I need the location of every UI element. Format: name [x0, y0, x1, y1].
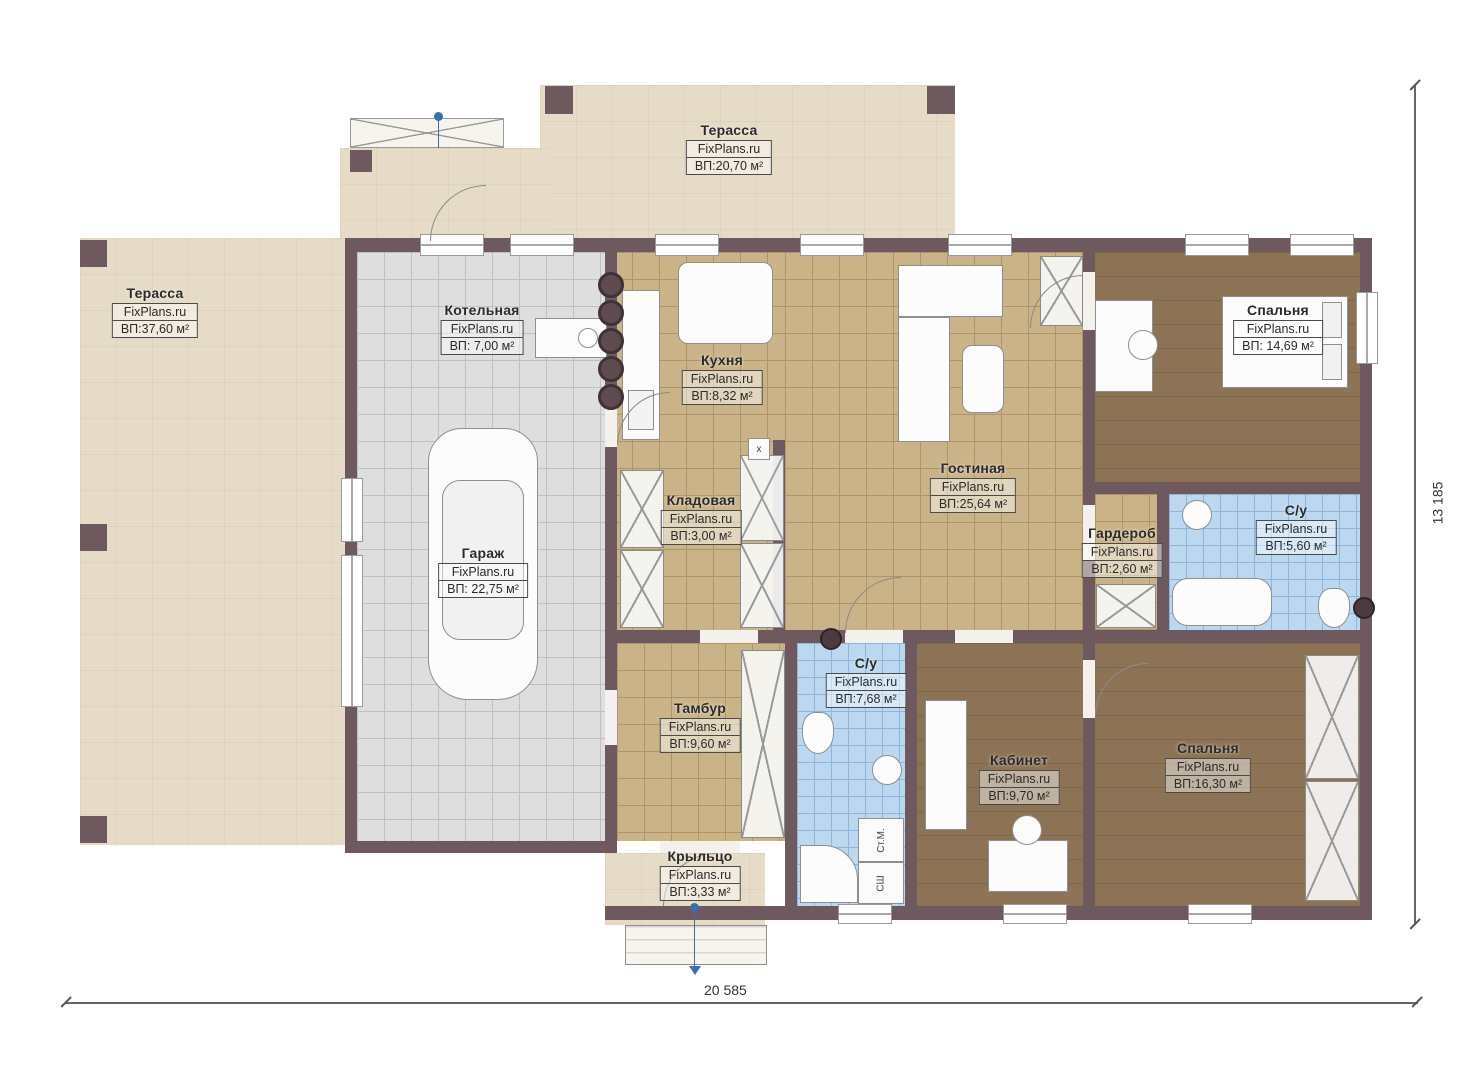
room-area: ВП: 14,69 м²	[1234, 338, 1322, 354]
label-office: Кабинет FixPlans.ru ВП:9,70 м²	[979, 752, 1060, 805]
label-wardrobe: Гардероб FixPlans.ru ВП:2,60 м²	[1082, 525, 1163, 578]
label-terrace-left: Терасса FixPlans.ru ВП:37,60 м²	[112, 285, 198, 338]
room-name: Гардероб	[1082, 525, 1163, 541]
room-area: ВП:37,60 м²	[113, 321, 197, 337]
bedroom1-pillow-1	[1322, 302, 1342, 338]
watermark: FixPlans.ru	[1083, 544, 1162, 561]
floor-plan: Ст.М. СШ x Терасса FixPlans.ru ВП:20,70 …	[0, 0, 1474, 1080]
label-bedroom2: Спальня FixPlans.ru ВП:16,30 м²	[1165, 740, 1251, 793]
label-garage: Гараж FixPlans.ru ВП: 22,75 м²	[438, 545, 528, 598]
living-sofa-side	[898, 317, 950, 442]
wall-bath2-office	[905, 643, 917, 908]
vent-marker-label: x	[757, 444, 762, 455]
watermark: FixPlans.ru	[980, 771, 1059, 788]
window-top-5	[948, 234, 1012, 256]
room-name: Котельная	[441, 302, 524, 318]
room-name: Кухня	[682, 352, 763, 368]
watermark: FixPlans.ru	[661, 867, 740, 884]
living-coffee-table	[962, 345, 1004, 413]
wall-bedroom1-south	[1095, 482, 1360, 494]
label-boiler: Котельная FixPlans.ru ВП: 7,00 м²	[441, 302, 524, 355]
watermark: FixPlans.ru	[687, 141, 771, 158]
porch-steps	[625, 925, 767, 965]
watermark: FixPlans.ru	[1257, 521, 1336, 538]
room-name: Терасса	[686, 122, 772, 138]
room-area: ВП: 22,75 м²	[439, 581, 527, 597]
bathroom1-sink	[1182, 500, 1212, 530]
wall-garage-bottom	[345, 841, 617, 853]
watermark: FixPlans.ru	[827, 674, 906, 691]
washing-machine: Ст.М.	[858, 818, 904, 862]
window-bedroom1	[1356, 292, 1378, 364]
bedroom2-closet-2	[1305, 781, 1359, 901]
bathroom2-sink	[872, 755, 902, 785]
watermark: FixPlans.ru	[1234, 321, 1322, 338]
porch-axis-dot	[690, 903, 699, 912]
pillar-terrace-left-bottom	[80, 816, 107, 843]
office-sofa	[925, 700, 967, 830]
vent-marker: x	[748, 438, 770, 460]
wall-left	[345, 238, 357, 853]
room-name: Спальня	[1233, 302, 1323, 318]
storage-closet-2	[620, 550, 664, 628]
window-bottom-1	[838, 904, 892, 924]
wall-tambour-east	[785, 643, 797, 920]
watermark: FixPlans.ru	[662, 511, 741, 528]
room-name: Спальня	[1165, 740, 1251, 756]
dim-height-label: 13 185	[1429, 478, 1445, 529]
label-bathroom1: С/у FixPlans.ru ВП:5,60 м²	[1256, 502, 1337, 555]
boiler-sink	[578, 328, 598, 348]
watermark: FixPlans.ru	[1166, 759, 1250, 776]
porch-axis-arrow	[689, 966, 701, 975]
window-top-4	[800, 234, 864, 256]
room-area: ВП:2,60 м²	[1083, 561, 1162, 577]
burner-2	[598, 300, 624, 326]
storage-closet-4	[740, 543, 784, 628]
dining-table	[678, 262, 773, 344]
window-bottom-2	[1003, 904, 1067, 924]
dryer-label: СШ	[875, 875, 886, 891]
label-tambour: Тамбур FixPlans.ru ВП:9,60 м²	[660, 700, 741, 753]
room-name: Гостиная	[930, 460, 1016, 476]
label-bedroom1: Спальня FixPlans.ru ВП: 14,69 м²	[1233, 302, 1323, 355]
room-area: ВП: 7,00 м²	[442, 338, 523, 354]
office-chair	[1012, 815, 1042, 845]
room-name: Гараж	[438, 545, 528, 561]
porch-axis-line	[694, 905, 695, 973]
watermark: FixPlans.ru	[931, 479, 1015, 496]
dim-line-bottom	[65, 1002, 1418, 1004]
garage-gate	[341, 555, 363, 707]
door-tambour-hall	[700, 630, 758, 643]
pillar-terrace-left-top	[80, 240, 107, 267]
riser-dot-1	[820, 628, 842, 650]
window-garage	[341, 478, 363, 542]
watermark: FixPlans.ru	[661, 719, 740, 736]
watermark: FixPlans.ru	[683, 371, 762, 388]
terrace-top-railing	[350, 118, 504, 148]
pillar-terrace-left-mid	[80, 524, 107, 551]
room-area: ВП:3,33 м²	[661, 884, 740, 900]
bedroom2-closet-1	[1305, 655, 1359, 779]
pillar-terrace-top-left	[545, 86, 573, 114]
bathroom1-tub	[1172, 578, 1272, 626]
burner-5	[598, 384, 624, 410]
dim-width-label: 20 585	[700, 982, 751, 998]
room-name: Крыльцо	[660, 848, 741, 864]
room-name: С/у	[1256, 502, 1337, 518]
room-area: ВП:9,60 м²	[661, 736, 740, 752]
room-name: Кладовая	[661, 492, 742, 508]
room-name: Терасса	[112, 285, 198, 301]
label-living: Гостиная FixPlans.ru ВП:25,64 м²	[930, 460, 1016, 513]
storage-closet-3	[740, 455, 784, 541]
wardrobe-closet	[1096, 584, 1156, 628]
room-area: ВП:3,00 м²	[662, 528, 741, 544]
room-area: ВП:16,30 м²	[1166, 776, 1250, 792]
wall-bottom	[605, 906, 1372, 920]
burner-1	[598, 272, 624, 298]
window-top-7	[1290, 234, 1354, 256]
bathroom1-toilet	[1318, 588, 1350, 628]
living-sofa-top	[898, 265, 1003, 317]
office-desk	[988, 840, 1068, 892]
bedroom1-pillow-2	[1322, 344, 1342, 380]
pillar-terrace-top-right	[927, 86, 955, 114]
room-area: ВП:9,70 м²	[980, 788, 1059, 804]
door-living-bedroom1	[1083, 272, 1095, 330]
watermark: FixPlans.ru	[113, 304, 197, 321]
room-name: С/у	[826, 655, 907, 671]
bathroom2-toilet	[802, 712, 834, 754]
label-storage: Кладовая FixPlans.ru ВП:3,00 м²	[661, 492, 742, 545]
washing-machine-label: Ст.М.	[876, 828, 887, 853]
door-garage-tambour	[605, 690, 617, 745]
terrace-axis-line	[438, 118, 439, 148]
room-name: Кабинет	[979, 752, 1060, 768]
room-name: Тамбур	[660, 700, 741, 716]
label-bathroom2: С/у FixPlans.ru ВП:7,68 м²	[826, 655, 907, 708]
window-top-2	[510, 234, 574, 256]
room-area: ВП:8,32 м²	[683, 388, 762, 404]
burner-4	[598, 356, 624, 382]
room-area: ВП:7,68 м²	[827, 691, 906, 707]
dryer: СШ	[858, 862, 904, 904]
bedroom1-chair	[1128, 330, 1158, 360]
window-top-6	[1185, 234, 1249, 256]
burner-3	[598, 328, 624, 354]
label-porch: Крыльцо FixPlans.ru ВП:3,33 м²	[660, 848, 741, 901]
riser-dot-2	[1353, 597, 1375, 619]
door-bedroom2	[1083, 660, 1095, 718]
window-top-3	[655, 234, 719, 256]
storage-closet-1	[620, 470, 664, 548]
label-terrace-top: Терасса FixPlans.ru ВП:20,70 м²	[686, 122, 772, 175]
room-area: ВП:5,60 м²	[1257, 538, 1336, 554]
dim-line-right	[1414, 85, 1416, 925]
pillar-terrace-top-ext	[350, 150, 372, 172]
room-area: ВП:25,64 м²	[931, 496, 1015, 512]
window-bottom-3	[1188, 904, 1252, 924]
door-living-office	[955, 630, 1013, 643]
tambour-closet	[741, 650, 785, 838]
room-area: ВП:20,70 м²	[687, 158, 771, 174]
label-kitchen: Кухня FixPlans.ru ВП:8,32 м²	[682, 352, 763, 405]
watermark: FixPlans.ru	[442, 321, 523, 338]
watermark: FixPlans.ru	[439, 564, 527, 581]
